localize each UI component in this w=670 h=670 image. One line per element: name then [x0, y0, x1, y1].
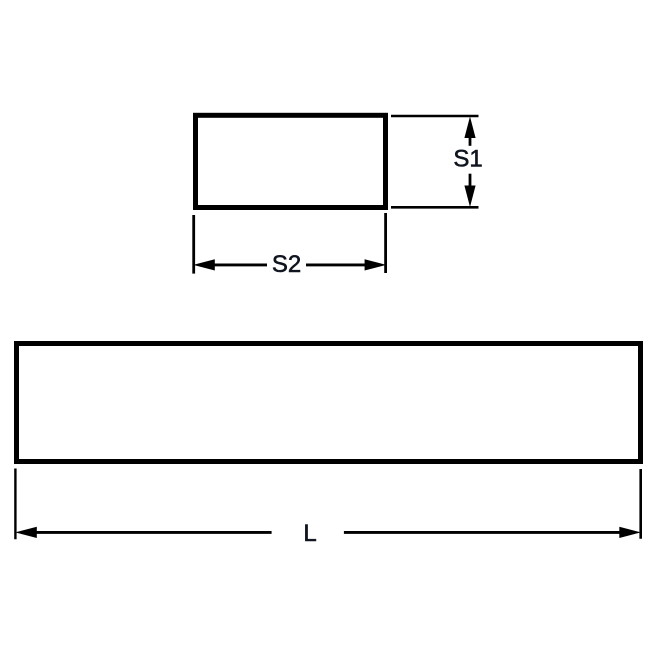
svg-text:S2: S2 — [272, 251, 301, 278]
svg-text:L: L — [303, 520, 316, 547]
svg-text:S1: S1 — [453, 146, 482, 173]
